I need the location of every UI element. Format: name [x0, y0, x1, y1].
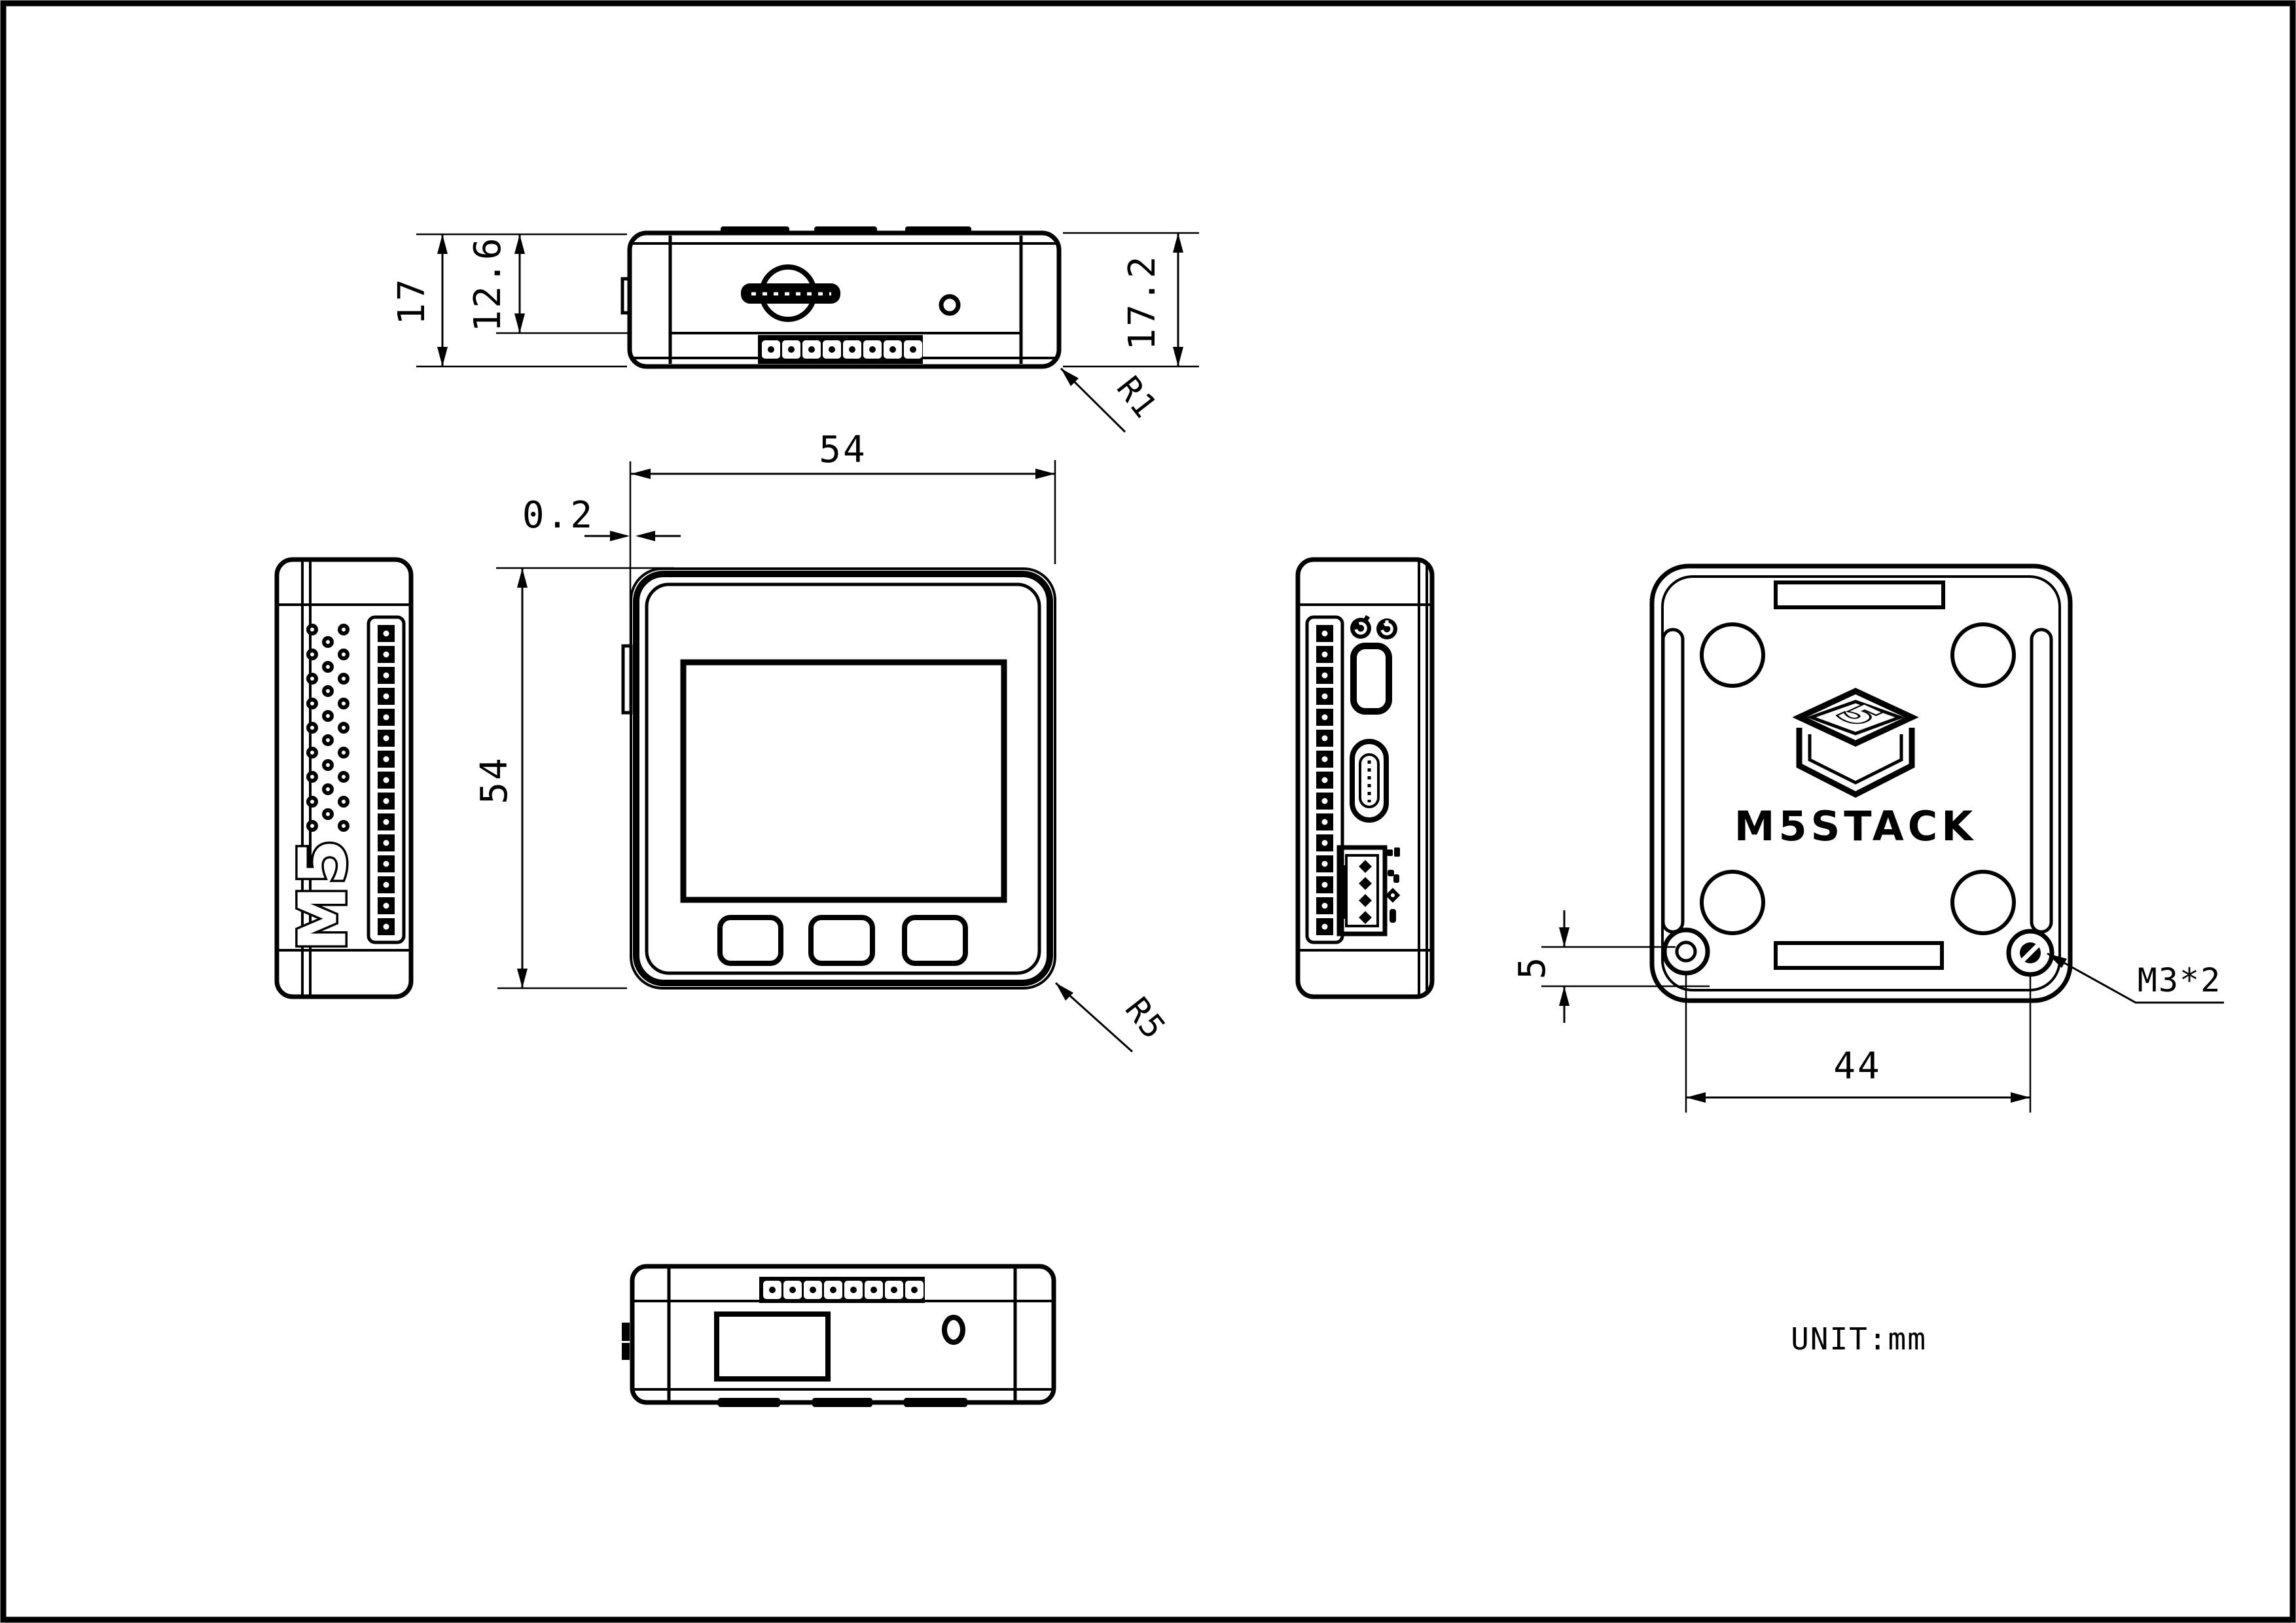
right-side-view [1298, 560, 1432, 997]
hole-top [941, 296, 958, 313]
screen [683, 662, 1004, 900]
screw-hole-left [1664, 930, 1708, 973]
hole-bottom [944, 1317, 963, 1342]
screw-spec-note: M3*2 [2138, 961, 2221, 999]
slot-bottom [1776, 943, 1942, 968]
brand-wordmark: M5STACK [1734, 802, 1977, 850]
m5-side-logo: M5 [284, 838, 361, 951]
front-outline [631, 569, 1055, 988]
back-view-dimensions: 5 44 M3*2 [1511, 910, 2224, 1113]
radius-note-r5: R5 [1118, 990, 1174, 1046]
usb-c-port [1352, 741, 1386, 820]
pin-header-bottom [759, 1277, 925, 1303]
vent-grille [306, 624, 350, 832]
pin-header-top [758, 335, 923, 364]
front-view-dimensions: 54 0.2 54 R5 [473, 429, 1174, 1052]
grove-pin-label-icons [1386, 847, 1401, 923]
dim-screw-spacing: 44 [1833, 1045, 1881, 1088]
power-icon [1376, 618, 1397, 639]
dim-total-height: 17.2 [1121, 255, 1164, 351]
radius-note-r1: R1 [1109, 369, 1165, 425]
button-c [905, 918, 965, 963]
stack-feet-tabs-bottom [718, 1398, 967, 1407]
grove-port [1339, 847, 1385, 934]
dim-screw-offset: 5 [1511, 955, 1554, 980]
dim-overall-height: 17 [391, 277, 433, 325]
dim-lid-step: 0.2 [522, 494, 594, 537]
stack-feet-tabs [721, 226, 971, 234]
battery-hatch [717, 1314, 828, 1379]
dim-width: 54 [819, 429, 867, 471]
rail-left [1663, 630, 1683, 932]
m5-cube-logo: 5 [1799, 691, 1912, 794]
button-a [720, 918, 781, 963]
sd-card-slot [741, 283, 840, 304]
dim-height: 54 [473, 756, 516, 804]
foot-circle [1952, 872, 2014, 933]
unit-note: UNIT:mm [1791, 1321, 1927, 1357]
front-view [623, 569, 1055, 988]
top-view [622, 226, 1059, 366]
bottom-view [622, 1266, 1054, 1407]
slot-top [1776, 582, 1943, 607]
back-view: 5 M5STACK [1652, 566, 2070, 1001]
button-b [811, 918, 872, 963]
rail-right [2032, 630, 2051, 932]
power-button [1354, 646, 1389, 711]
drawing-sheet: 17 12.6 17.2 R1 54 0.2 [0, 0, 2296, 1623]
foot-circle [1952, 624, 2014, 686]
side-bumps [622, 1323, 630, 1360]
screw-hole-right [2009, 931, 2052, 974]
pin-header-left-side [368, 617, 404, 942]
foot-circle [1702, 872, 1763, 933]
sd-slot-edge [622, 279, 630, 313]
foot-circle [1702, 624, 1763, 686]
dim-lid-height: 12.6 [467, 236, 509, 332]
left-side-view: M5 [277, 560, 411, 997]
reset-icon [1350, 615, 1371, 639]
